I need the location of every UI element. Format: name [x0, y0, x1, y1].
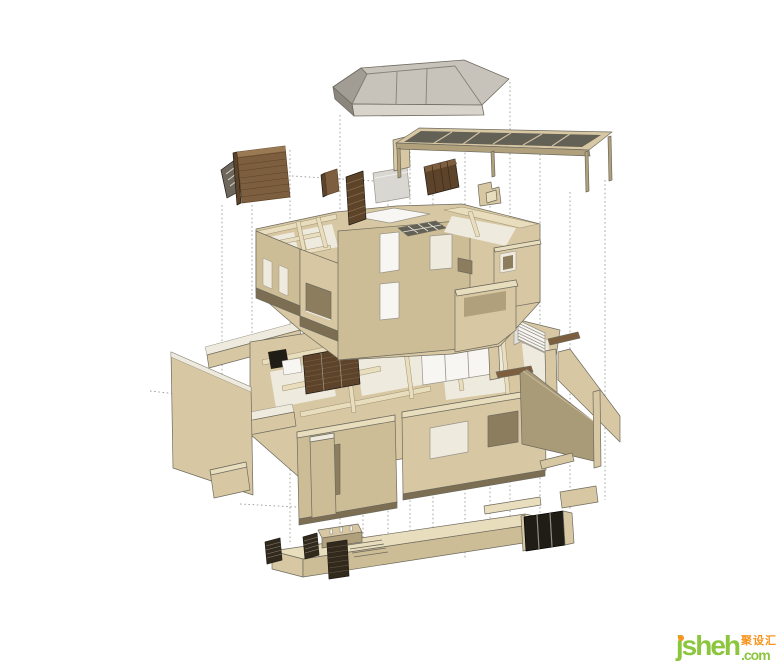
tan-blocks: [478, 182, 501, 206]
wood-panel: [233, 146, 290, 205]
hip-roof: [333, 60, 509, 116]
screenshot: jsheh 聚设汇 .com: [0, 0, 780, 664]
louver-screen: [303, 533, 319, 559]
exploded-house-illustration: [0, 0, 780, 664]
watermark-brand: jsheh: [676, 635, 739, 658]
louver-screen: [265, 538, 282, 564]
shelf-unit: [424, 159, 459, 195]
door-opening: [380, 282, 399, 320]
window-opening: [488, 411, 518, 447]
watermark-dot-icon: [678, 635, 684, 641]
watermark-tld: .com: [741, 648, 777, 662]
wood-block: [321, 169, 339, 197]
watermark-cjk: 聚设汇: [741, 636, 777, 647]
window-opening: [430, 421, 468, 459]
window-opening: [430, 234, 452, 270]
watermark: jsheh 聚设汇 .com: [676, 635, 777, 662]
louver-box: [327, 540, 349, 579]
door-opening: [380, 232, 399, 273]
slat-panel: [346, 171, 366, 225]
entry-gate: [521, 511, 574, 551]
